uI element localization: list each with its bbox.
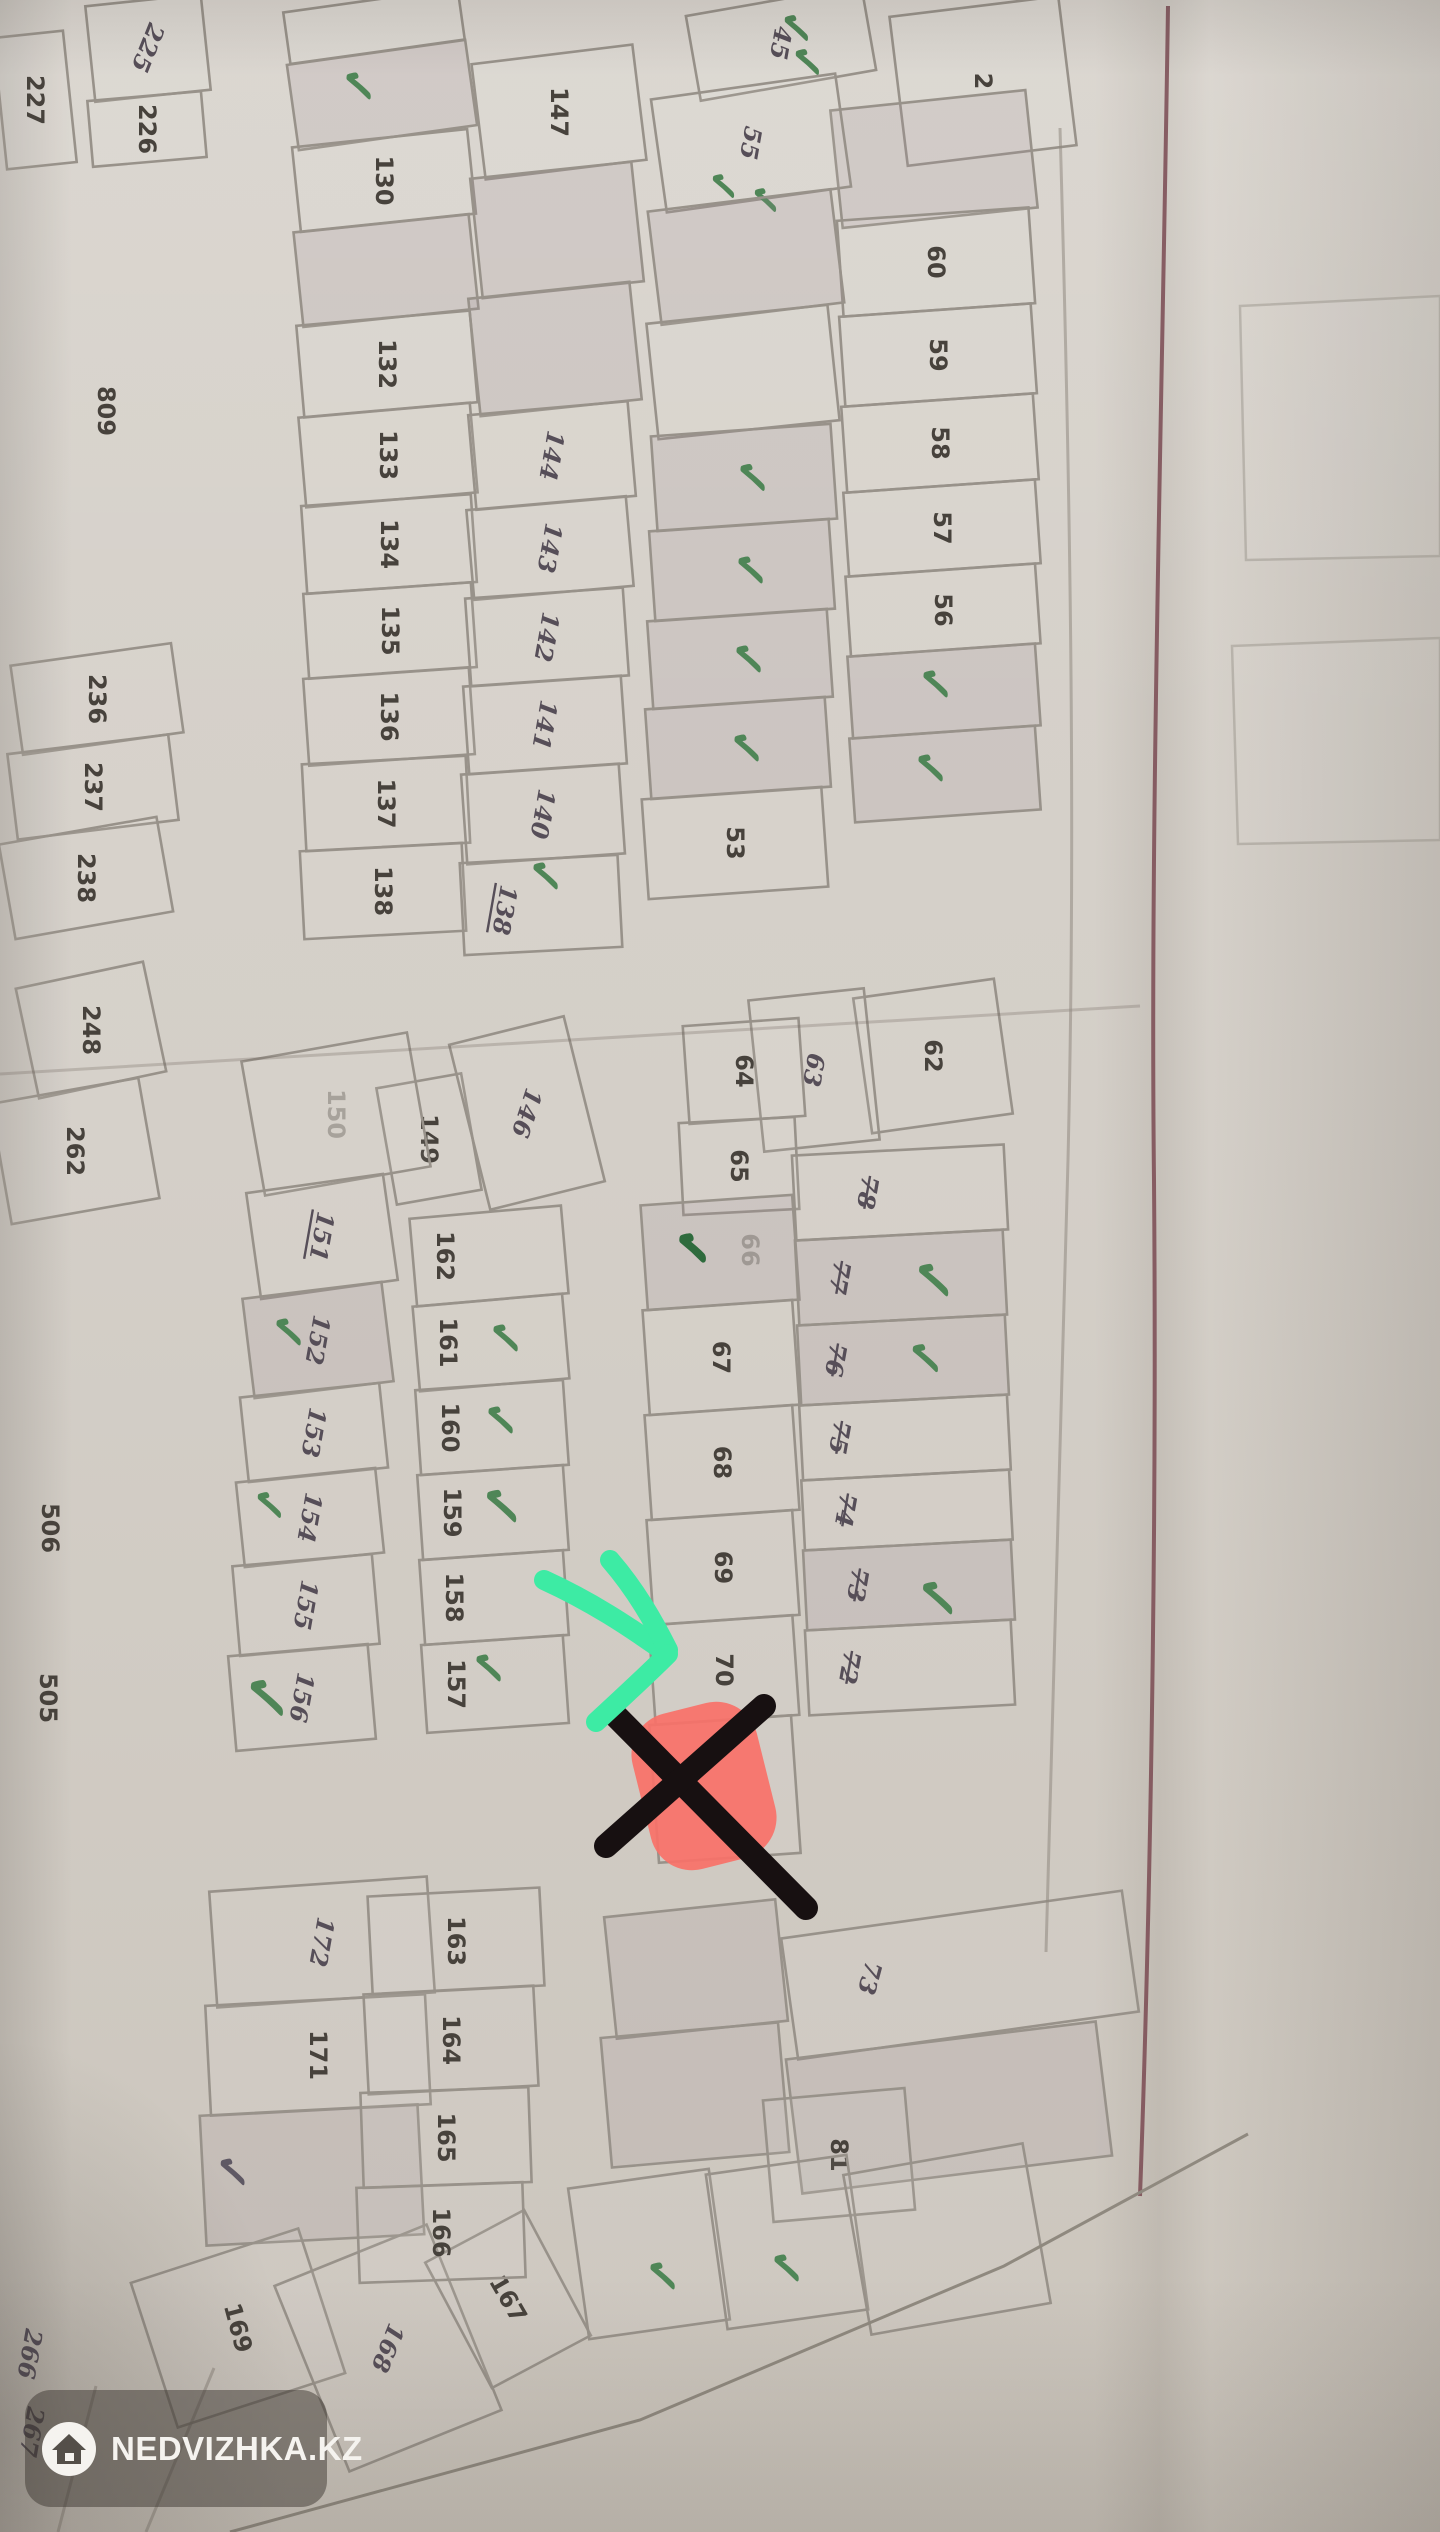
plot-unlabeled [294, 214, 479, 327]
plot-141: 141 [463, 676, 627, 775]
plot-157: 157✓ [421, 1635, 569, 1733]
plot-67: 67 [643, 1300, 800, 1415]
plot-75: 75 [799, 1395, 1011, 1481]
plot-809: 809 [92, 386, 120, 436]
svg-text:266: 266 [11, 2326, 48, 2382]
plot-135: 135 [303, 582, 477, 679]
checkmark-icon: ✓ [241, 1484, 296, 1526]
plot-unlabeled [601, 2022, 790, 2167]
plot-60: 60 [837, 207, 1035, 316]
checkmark-icon: ✓ [897, 1253, 967, 1306]
plot-162: 162 [409, 1206, 568, 1307]
plot-154: 154✓ [236, 1468, 384, 1567]
plot-164: 164 [363, 1986, 538, 2095]
plot-64: 64 [683, 1018, 806, 1124]
checkmark-icon: ✓ [203, 2150, 261, 2194]
plot-unlabeled [843, 2143, 1050, 2334]
svg-text:165: 165 [432, 2112, 460, 2162]
plot-158: 158 [419, 1550, 569, 1645]
svg-text:161: 161 [434, 1317, 462, 1367]
plot-248: 248 [16, 962, 166, 1099]
svg-text:227: 227 [21, 75, 49, 125]
plot-166: 166 [356, 2182, 525, 2283]
svg-text:164: 164 [437, 2015, 465, 2065]
plot-160: 160✓ [415, 1380, 569, 1475]
plot-138: 138 [300, 843, 466, 939]
ghost-rect-2 [1232, 638, 1440, 844]
plot-159: 159✓ [417, 1465, 569, 1560]
checkmark-icon: ✓ [663, 1226, 721, 1270]
plot-53: 53 [642, 787, 829, 899]
svg-text:77: 77 [823, 1259, 857, 1297]
checkmark-icon: ✓ [476, 1316, 534, 1360]
checkmark-icon: ✓ [719, 637, 777, 681]
watermark: NEDVIZHKA.KZ [25, 2390, 327, 2507]
plot-505: 505 [34, 1673, 62, 1723]
plot-74: 74 [801, 1470, 1012, 1551]
checkmark-icon: ✓ [465, 1479, 535, 1532]
plot-134: 134 [301, 494, 477, 594]
plot-unlabeled [604, 1899, 788, 2038]
svg-text:75: 75 [823, 1419, 857, 1457]
svg-text:158: 158 [440, 1572, 468, 1622]
svg-text:58: 58 [926, 426, 954, 459]
plot-56: 56 [845, 563, 1040, 656]
svg-text:226: 226 [133, 104, 161, 154]
svg-text:505: 505 [34, 1673, 62, 1723]
plot-156: 156✓ [227, 1644, 376, 1751]
plot-unlabeled: ✓ [849, 726, 1040, 823]
plot-142: 142 [465, 588, 629, 687]
svg-text:62: 62 [919, 1039, 947, 1072]
plot-unlabeled [470, 162, 644, 298]
plot-153: 153 [240, 1383, 388, 1482]
plot-59: 59 [839, 303, 1037, 406]
plot-76: 76✓ [797, 1315, 1009, 1406]
svg-text:73: 73 [841, 1566, 875, 1604]
svg-text:56: 56 [929, 593, 957, 626]
plot-unlabeled [830, 90, 1037, 228]
svg-text:162: 162 [431, 1231, 459, 1281]
svg-text:138: 138 [369, 866, 397, 916]
house-icon [41, 2421, 97, 2477]
svg-text:137: 137 [372, 778, 400, 828]
svg-text:238: 238 [72, 853, 100, 903]
checkmark-icon: ✓ [329, 64, 387, 108]
svg-text:150: 150 [322, 1089, 350, 1139]
svg-text:132: 132 [373, 339, 401, 389]
watermark-text: NEDVIZHKA.KZ [111, 2430, 363, 2468]
checkmark-icon: ✓ [894, 1335, 954, 1381]
svg-text:130: 130 [370, 155, 398, 205]
plot-68: 68 [645, 1405, 800, 1520]
svg-text:147: 147 [545, 87, 573, 137]
plot-144: 144 [468, 401, 636, 510]
svg-text:159: 159 [438, 1487, 466, 1537]
svg-text:136: 136 [375, 691, 403, 741]
svg-text:66: 66 [736, 1233, 764, 1266]
plot-66: 66✓ [641, 1195, 800, 1310]
svg-text:57: 57 [928, 511, 956, 544]
checkmark-icon: ✓ [717, 726, 775, 770]
plot-72: 72 [805, 1620, 1015, 1716]
svg-text:72: 72 [833, 1649, 867, 1687]
plot-unlabeled [648, 189, 845, 325]
svg-text:68: 68 [708, 1446, 736, 1479]
svg-text:506: 506 [36, 1503, 64, 1553]
ghost-rect-1 [1240, 296, 1440, 560]
svg-text:60: 60 [922, 245, 950, 278]
svg-text:55: 55 [734, 124, 768, 162]
cadastral-map: 26059585756✓✓45✓✓55✓✓✓✓✓✓53✓130132133134… [0, 0, 1440, 2532]
plot-506: 506 [36, 1503, 64, 1553]
svg-text:134: 134 [375, 519, 403, 569]
svg-text:262: 262 [61, 1126, 89, 1176]
checkmark-icon: ✓ [901, 746, 959, 790]
svg-text:65: 65 [725, 1149, 753, 1182]
checkmark-icon: ✓ [723, 456, 781, 500]
svg-text:236: 236 [83, 674, 111, 724]
checkmark-icon: ✓ [757, 2246, 815, 2290]
plot-78: 78 [792, 1145, 1008, 1241]
plot-77: 77✓ [795, 1230, 1007, 1326]
svg-text:160: 160 [436, 1402, 464, 1452]
checkmark-icon: ✓ [901, 1571, 971, 1624]
plot-unlabeled: ✓ [647, 609, 833, 709]
plot-225: 225 [85, 0, 210, 102]
checkmark-icon: ✓ [259, 1310, 317, 1354]
svg-text:163: 163 [442, 1916, 470, 1966]
svg-text:78: 78 [851, 1174, 885, 1212]
svg-text:70: 70 [710, 1653, 738, 1686]
plot-136: 136 [303, 667, 475, 765]
checkmark-icon: ✓ [516, 854, 574, 898]
plot-133: 133 [298, 403, 477, 508]
plot-58: 58 [841, 393, 1039, 492]
plot-unlabeled: ✓ [649, 519, 835, 621]
plot-226: 226 [87, 91, 206, 167]
plot-unlabeled: ✓ [847, 644, 1040, 739]
svg-text:76: 76 [819, 1341, 853, 1379]
svg-text:248: 248 [77, 1005, 105, 1055]
plot-unlabeled [646, 305, 839, 439]
svg-text:67: 67 [707, 1341, 735, 1374]
plot-262: 262 [0, 1078, 159, 1224]
plot-165: 165 [360, 2087, 531, 2188]
plot-137: 137 [302, 756, 470, 851]
plot-163: 163 [368, 1888, 545, 1995]
plot-143: 143 [466, 496, 633, 600]
plot-map-photo: 26059585756✓✓45✓✓55✓✓✓✓✓✓53✓130132133134… [0, 0, 1440, 2532]
plot-147: 147 [472, 45, 647, 180]
svg-text:64: 64 [730, 1054, 758, 1087]
checkmark-icon: ✓ [459, 1646, 517, 1690]
boundary-line [1140, 6, 1168, 2196]
plot-138: 138✓ [460, 854, 623, 955]
plot-227: 227 [0, 31, 77, 170]
plot-57: 57 [843, 479, 1040, 576]
plot-73: 73✓ [803, 1540, 1015, 1631]
plot-unlabeled: ✓ [651, 424, 837, 531]
plot-69: 69 [647, 1510, 800, 1625]
svg-text:53: 53 [721, 826, 749, 859]
plot-unlabeled: ✓ [568, 2169, 730, 2339]
checkmark-icon: ✓ [721, 548, 779, 592]
plot-152: 152✓ [242, 1282, 393, 1398]
plot-132: 132 [296, 311, 477, 418]
plot-151: 151 [246, 1174, 398, 1299]
plot-161: 161✓ [413, 1294, 570, 1392]
plot-unlabeled [468, 282, 641, 416]
svg-text:133: 133 [374, 430, 402, 480]
plot-266: 266 [11, 2326, 48, 2382]
svg-text:2: 2 [969, 73, 997, 90]
svg-text:74: 74 [829, 1491, 863, 1529]
checkmark-icon: ✓ [227, 1668, 305, 1727]
svg-text:59: 59 [924, 338, 952, 371]
street-line [1046, 128, 1072, 1952]
plot-140: 140 [461, 764, 625, 865]
plot-155: 155 [232, 1554, 379, 1656]
svg-text:171: 171 [304, 2030, 332, 2080]
svg-text:135: 135 [376, 605, 404, 655]
svg-text:166: 166 [427, 2207, 455, 2257]
svg-text:809: 809 [92, 386, 120, 436]
checkmark-icon: ✓ [633, 2254, 691, 2298]
svg-text:69: 69 [709, 1551, 737, 1584]
plot-unlabeled: ✓ [645, 697, 831, 799]
checkmark-icon: ✓ [906, 662, 964, 706]
checkmark-icon: ✓ [471, 1398, 529, 1442]
svg-text:237: 237 [79, 762, 107, 812]
